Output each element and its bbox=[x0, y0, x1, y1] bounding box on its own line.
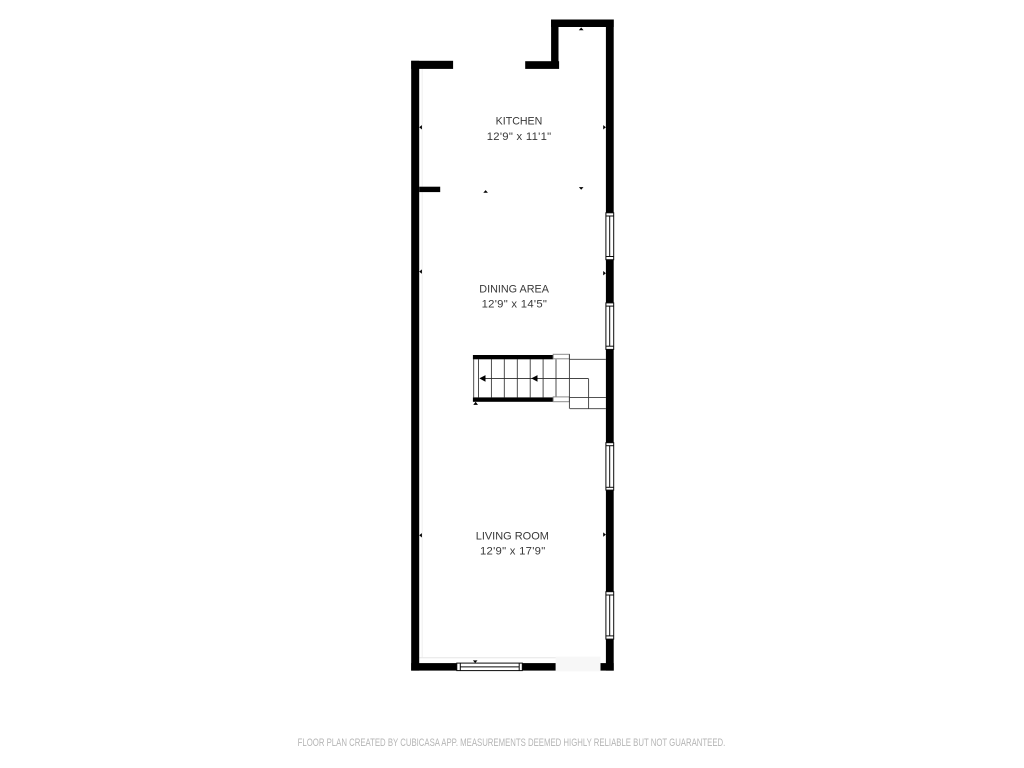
svg-text:FLOOR PLAN CREATED BY CUBICASA: FLOOR PLAN CREATED BY CUBICASA APP. MEAS… bbox=[298, 737, 726, 750]
svg-text:12'9" x 14'5": 12'9" x 14'5" bbox=[482, 299, 548, 311]
svg-text:DINING AREA: DINING AREA bbox=[479, 283, 549, 295]
svg-text:KITCHEN: KITCHEN bbox=[496, 115, 543, 127]
svg-text:12'9" x 11'1": 12'9" x 11'1" bbox=[487, 131, 552, 143]
svg-text:LIVING ROOM: LIVING ROOM bbox=[476, 530, 549, 542]
svg-text:12'9" x 17'9": 12'9" x 17'9" bbox=[480, 545, 546, 557]
